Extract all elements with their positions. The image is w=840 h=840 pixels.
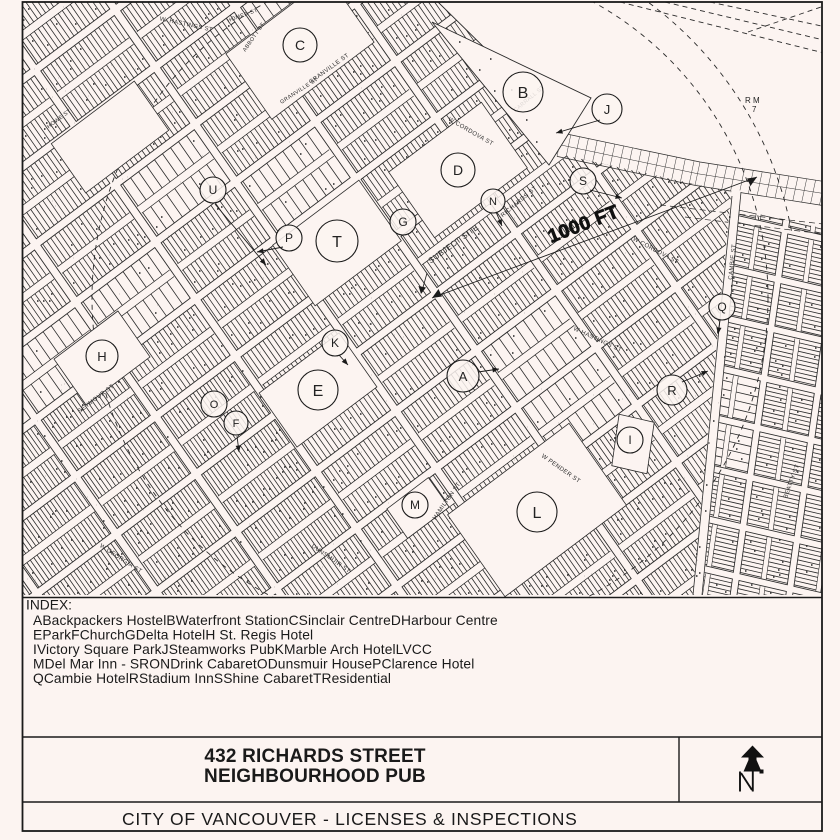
svg-text:I: I: [628, 433, 631, 447]
svg-text:EParkFChurchGDelta HotelH St.: EParkFChurchGDelta HotelH St. Regis Hote…: [33, 627, 313, 642]
svg-text:P: P: [285, 231, 293, 245]
svg-text:L: L: [533, 505, 542, 522]
svg-text:NEIGHBOURHOOD PUB: NEIGHBOURHOOD PUB: [204, 766, 426, 787]
svg-text:C: C: [295, 37, 305, 53]
svg-text:K: K: [331, 336, 339, 350]
svg-text:ABackpackers HostelBWaterfront: ABackpackers HostelBWaterfront StationCS…: [33, 613, 498, 628]
svg-text:QCambie HotelRStadium InnSShin: QCambie HotelRStadium InnSShine CabaretT…: [33, 671, 391, 686]
svg-text:D: D: [453, 162, 463, 178]
svg-text:R: R: [667, 383, 676, 398]
svg-text:J: J: [604, 102, 611, 117]
svg-text:R M: R M: [745, 96, 760, 105]
svg-text:T: T: [332, 234, 342, 251]
svg-text:CITY OF VANCOUVER - LICENSES: CITY OF VANCOUVER - LICENSES & INSPECTIO…: [122, 809, 578, 829]
svg-text:O: O: [210, 399, 219, 411]
svg-text:INDEX:: INDEX:: [26, 598, 72, 613]
svg-text:F: F: [233, 418, 240, 430]
svg-text:U: U: [209, 183, 218, 197]
svg-text:IVictory Square ParkJSteamwork: IVictory Square ParkJSteamworks PubKMarb…: [33, 642, 432, 657]
svg-text:MDel Mar Inn - SRONDrink Cabar: MDel Mar Inn - SRONDrink CabaretODunsmui…: [33, 657, 474, 672]
svg-text:B: B: [518, 85, 529, 102]
svg-text:S: S: [579, 174, 587, 188]
svg-text:A: A: [459, 369, 468, 384]
svg-text:G: G: [398, 215, 407, 229]
svg-text:H: H: [97, 349, 106, 364]
svg-text:M: M: [410, 498, 420, 512]
svg-text:N: N: [489, 196, 497, 208]
svg-text:432 RICHARDS STREET: 432 RICHARDS STREET: [204, 746, 425, 767]
svg-text:E: E: [313, 383, 324, 400]
svg-text:7: 7: [752, 105, 757, 114]
svg-text:Q: Q: [717, 300, 726, 314]
